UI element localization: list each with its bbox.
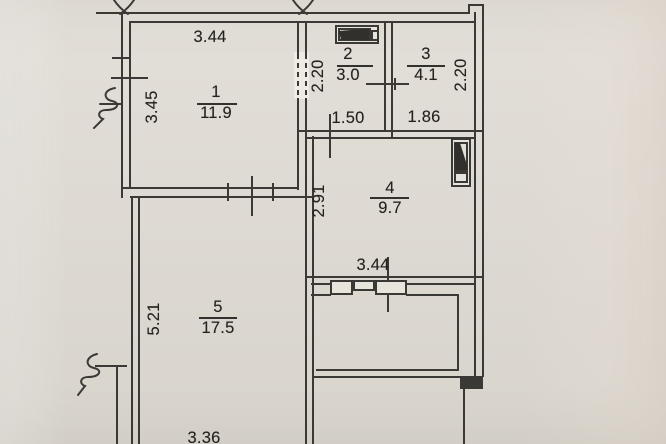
room-3-area: 4.1 [406,67,446,84]
squiggle-break-icon [78,354,99,395]
squiggle-break-icon [94,88,117,128]
room-2-number: 2 [328,46,368,63]
room-5-dim-left: 5.21 [143,296,165,342]
wall-break-icon [120,0,134,14]
room-5-area: 17.5 [197,320,239,337]
room-5-dim-bottom: 3.36 [180,430,228,444]
room-4-dim-bottom: 3.44 [349,257,397,274]
room-3-dim-bottom: 1.86 [402,109,446,126]
wall-break-icon [299,0,313,14]
room-2-area: 3.0 [328,67,368,84]
sink-fixture-icon [339,29,369,41]
room-4-number: 4 [370,180,410,197]
room-5-number: 5 [198,299,238,316]
room-1-dim-top: 3.44 [184,29,236,46]
boiler-fixture-icon [455,143,467,170]
floor-plan: 3.44 3.45 1 11.9 2.20 2 3.0 1.50 3 4.1 2… [0,0,666,444]
wall-break-icon [114,0,128,14]
room-2-dim-left: 2.20 [307,53,329,99]
room-3-number: 3 [406,46,446,63]
room-3-dim-right: 2.20 [450,52,472,98]
room-1-number: 1 [196,84,236,101]
wall-break-icon [293,0,307,14]
room-4-area: 9.7 [370,200,410,217]
room-1-area: 11.9 [196,105,236,122]
room-4-dim-left: 2.91 [308,178,330,224]
room-1-dim-left: 3.45 [141,84,163,130]
room-2-dim-bottom: 1.50 [326,110,370,127]
